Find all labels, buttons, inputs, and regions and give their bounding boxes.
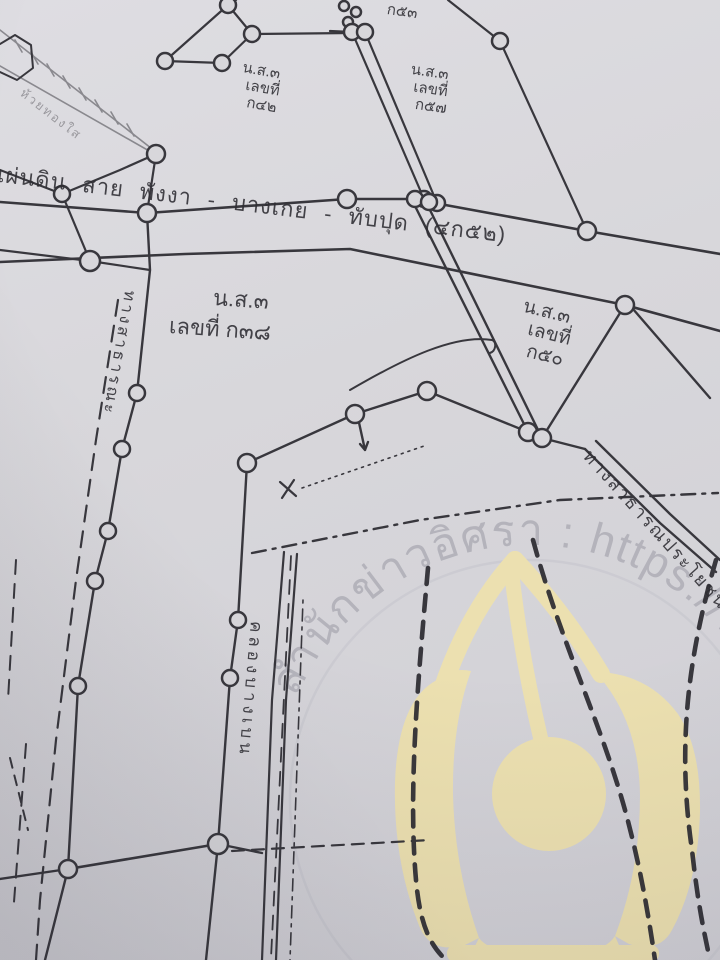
tent-polyline bbox=[247, 391, 528, 463]
parcel-label-k57: น.ส.๓ เลขที่ ก๕๗ bbox=[405, 62, 452, 118]
bottom-road-lines bbox=[0, 840, 430, 960]
x-mark bbox=[280, 446, 424, 498]
parcel-label-k42: น.ส.๓ เลขที่ ก๔๒ bbox=[235, 60, 284, 117]
survey-markers bbox=[54, 0, 634, 878]
dashed-curves bbox=[413, 540, 716, 960]
survey-map-photo: สำนักข่าวอิศรา : https://www.isr bbox=[0, 0, 720, 960]
parcel-label-k38: น.ส.๓ เลขที่ ก๓๘ bbox=[210, 286, 274, 345]
